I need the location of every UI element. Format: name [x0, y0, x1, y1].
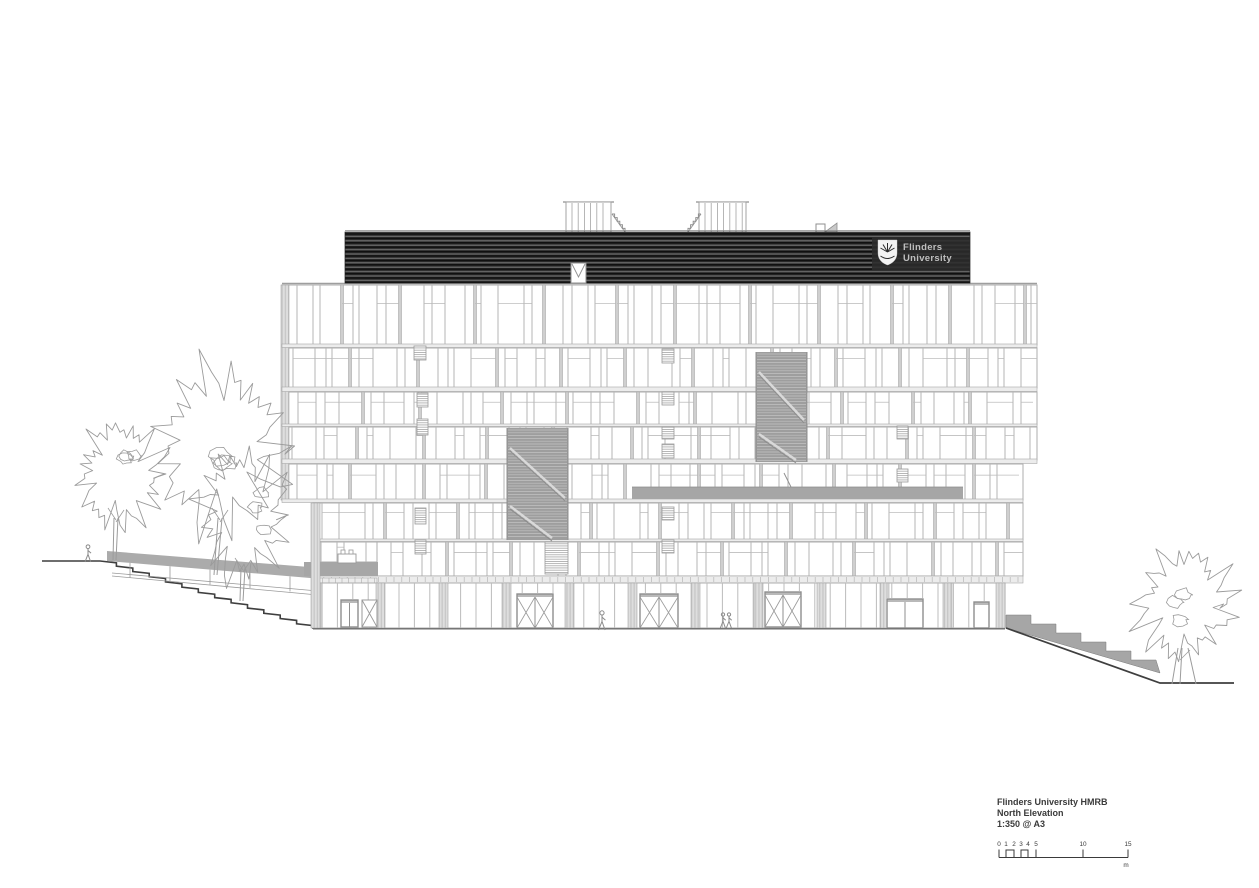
- svg-text:5: 5: [1034, 841, 1038, 848]
- logo-text-line2: University: [903, 253, 952, 264]
- title-block: Flinders University HMRB North Elevation…: [997, 797, 1217, 830]
- svg-text:3: 3: [1019, 841, 1023, 848]
- elevation-sheet: Flinders University Flinders University …: [0, 0, 1259, 888]
- scale-bar-unit: m: [1123, 862, 1128, 869]
- facade: [281, 284, 1037, 584]
- roof-hoist-box: [571, 263, 586, 283]
- svg-text:4: 4: [1026, 841, 1030, 848]
- elevation-drawing: Flinders University: [0, 0, 1259, 888]
- scale-bar-graphic: [999, 850, 1128, 858]
- scale-bar-labels: 0 1 2 3 4 5 10 15: [997, 841, 1132, 848]
- flinders-logo-shield-icon: [878, 240, 897, 265]
- drawing-name: North Elevation: [997, 808, 1217, 819]
- svg-text:10: 10: [1079, 841, 1087, 848]
- scale-note: 1:350 @ A3: [997, 819, 1217, 830]
- flinders-university-logo: Flinders University: [872, 237, 970, 270]
- svg-text:2: 2: [1012, 841, 1016, 848]
- scale-bar: 0 1 2 3 4 5 10 15 m: [995, 838, 1155, 870]
- rooftop-equipment: [563, 202, 837, 232]
- svg-text:15: 15: [1124, 841, 1132, 848]
- svg-text:0: 0: [997, 841, 1001, 848]
- logo-text-line1: Flinders: [903, 242, 942, 253]
- project-title: Flinders University HMRB: [997, 797, 1217, 808]
- roof-plant-screen: Flinders University: [345, 231, 970, 284]
- svg-text:1: 1: [1004, 841, 1008, 848]
